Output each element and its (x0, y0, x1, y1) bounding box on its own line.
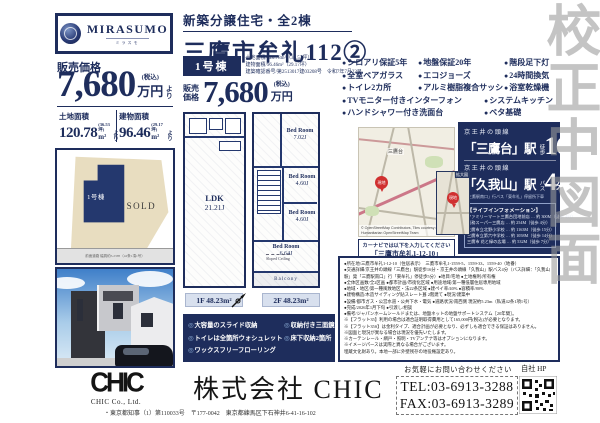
interior-feature-band: 大容量のスライド収納 トイレは全箇所ウォシュレット ワックスフリーフローリング … (183, 314, 335, 362)
site-pin-inset: 現地 (447, 192, 459, 204)
room-name: Bed Room (254, 244, 318, 251)
unit-price-currency: 万円 (271, 88, 293, 104)
price-row: 7,680 (税込) 万円 より (57, 67, 174, 102)
cloud-shape (55, 277, 85, 289)
unit-tag: 1号棟 (183, 56, 241, 76)
building-area-label: 建物面積 (119, 111, 173, 122)
brand-name: MIRASUMO (87, 22, 168, 37)
wall-line (282, 202, 317, 204)
site-pin-label: 現地 (449, 195, 457, 201)
property-category: 新築分譲住宅・全2棟 (183, 10, 352, 32)
contact-label: お気軽にお問い合わせください (398, 365, 518, 375)
interior-item: 大容量のスライド収納 (188, 320, 280, 329)
site-plan: 1号棟 SOLD 前面道路 幅員約5.23ｍ（42条1項1号） (55, 148, 175, 265)
room-name: Bed Room (280, 128, 320, 135)
site-pin: 現地 (375, 176, 388, 189)
price-amount: 7,680 (57, 67, 135, 102)
road-note: 前面道路 幅員約5.23ｍ（42条1項1号） (85, 254, 145, 258)
road-band: 前面道路 幅員約5.23ｍ（42条1項1号） (57, 248, 173, 263)
navi-instruction: カーナビでは以下を入力してください (359, 242, 454, 249)
divider (57, 106, 173, 107)
access-panel: 京王井の頭線 「三鷹台」駅 徒歩 16 分 京王井の頭線 「久我山」駅 バス 4… (458, 122, 560, 254)
car-shape (115, 345, 173, 367)
remark-line: ●設備/都市ガス・公営水道・公共下水・電気 ●道路状況/南西側 現況約5.23m… (344, 299, 554, 305)
life-info-item: 業務スーパー三鷹店 … 約 254M（徒歩 4分） (467, 220, 553, 226)
feature-item: 全室ペアガラス (342, 70, 418, 81)
floorplan-1f: LDK 21.21J (183, 112, 246, 288)
brand-kana: ミラスモ (106, 38, 150, 46)
bathroom-fixture (189, 118, 207, 134)
wall-line (185, 136, 244, 138)
room-name: Bed Room (282, 210, 320, 217)
entrance-fixture (225, 118, 241, 134)
feature-item: ベタ基礎 (484, 107, 521, 118)
land-area-value: 120.78 (59, 126, 97, 141)
kitchen-counter (219, 141, 241, 151)
life-info-title: 【ライフインフォメーション】 (467, 206, 553, 214)
price-suffix: より (164, 85, 174, 99)
wall-line (254, 166, 318, 168)
chic-logo-glyph: CHIC (76, 368, 156, 395)
bedroom2-label: Bed Room 4.60J (282, 174, 320, 188)
feature-item: トイレ2カ所 (342, 82, 418, 93)
access-mode: バス (538, 180, 544, 191)
station-name: 「三鷹台」駅 (464, 138, 536, 157)
feature-item: エコジョーズ (418, 70, 504, 81)
life-info-item: 三鷹市立北野小学校 … 約 1163M（徒歩 15分） (467, 227, 553, 233)
interior-item: 床下収納2箇所 (284, 333, 335, 342)
sloped-ceiling-note: Sloped Ceiling (266, 254, 290, 261)
land-area-tsubo: (36.53坪) (98, 122, 110, 133)
land-area: 土地面積 120.78 (36.53坪) m² より (57, 110, 116, 142)
room-size: 7.02J (280, 135, 320, 142)
area-row: 土地面積 120.78 (36.53坪) m² より 建物面積 96.46 (2… (57, 110, 175, 142)
wall-line (254, 240, 318, 242)
balcony-label: Balcony (274, 277, 298, 282)
bus-note: 「三鷹駅南口」行バス「東牟礼」停留所下車 (464, 194, 556, 200)
compass-icon (228, 289, 250, 311)
rail-line-name: 京王井の頭線 (464, 127, 556, 136)
remark-line: ※【フラット35】利用の場合は適合証明取得費用として165,000円(税込)が必… (344, 317, 554, 323)
unit1-lot-label: 1号棟 (87, 191, 105, 201)
interior-item: トイレは全箇所ウォシュレット (188, 333, 280, 342)
company-name: 株式会社 CHIC (193, 369, 384, 406)
qr-code (519, 376, 557, 414)
site-pin-label: 現地 (378, 180, 386, 186)
tel-fax-box: TEL:03-6913-3288 FAX:03-6913-3289 (396, 376, 518, 415)
license-line: ・東京都知事（1）第110033号 〒177-0042 東京都練馬区下石神井6-… (104, 408, 316, 417)
access-time: 16 (545, 137, 568, 157)
feature-item: TVモニター付きインターフォン (342, 95, 484, 106)
price-tax-note: (税込) (142, 71, 159, 81)
mirasumo-logo: MIRASUMO ミラスモ (55, 13, 173, 54)
unit-price-tax: (税込) (274, 79, 290, 88)
room-name: Bed Room (282, 174, 320, 181)
balcony: Balcony (254, 271, 318, 286)
interior-item: 収納付き三面鏡 (284, 320, 335, 329)
access-mode: 徒歩 (538, 144, 544, 155)
room-size: 4.60J (282, 181, 320, 188)
sold-label: SOLD (127, 201, 157, 211)
stairs (257, 170, 281, 214)
park-area (365, 206, 379, 216)
life-information: 【ライフインフォメーション】 ファミリーマート三鷹台団地前店 … 約 300M（… (464, 203, 556, 248)
chic-logo: CHIC CHIC Co., Ltd. (76, 369, 156, 406)
life-info-item: 三鷹市 花と緑の広場 … 約 532M（徒歩 7分） (467, 239, 553, 245)
exterior-render-image (55, 267, 175, 368)
building-area-tsubo: (29.17坪) (151, 122, 164, 133)
feature-item: 浴室乾燥機 (504, 82, 549, 93)
feature-item: アルミ樹脂複合サッシ (418, 82, 504, 93)
interior-item: ワックスフリーフローリング (188, 345, 280, 354)
enlarged-map-inset: 拡大図 現地 (436, 171, 470, 235)
land-area-label: 土地面積 (59, 111, 114, 122)
fax-number: FAX:03-6913-3289 (397, 396, 517, 413)
map-station-label: 三鷹台 (387, 148, 404, 155)
street (436, 212, 470, 214)
unit-price-amount: 7,680 (203, 77, 268, 106)
unit-price-label: 販売価格 (183, 84, 200, 102)
inset-title: 拡大図 (455, 172, 469, 178)
access-minute-unit: 分 (556, 180, 565, 192)
window-shape (113, 303, 123, 319)
homepage-label: 自社 HP (521, 364, 546, 374)
mirasumo-circle-icon (60, 23, 81, 44)
building-area: 建物面積 96.46 (29.17坪) m² より (116, 110, 175, 142)
property-remarks: ●所在地/三鷹市牟礼1-12-10（住居表示） 三鷹市牟礼1-1559-5、15… (338, 256, 560, 362)
room-size: 21.21J (185, 204, 244, 213)
feature-item: ハンドシャワー付き洗面台 (342, 107, 484, 118)
land-area-unit: m² (98, 133, 106, 141)
remark-line: ●交通詳細/京王井の頭線「三鷹台」駅徒歩16分・京王井の頭線「久我山」駅バス4分… (344, 267, 554, 280)
room-size: 4.60J (282, 217, 320, 224)
access-time: 4 (545, 173, 557, 193)
rail-line-name: 京王井の頭線 (464, 163, 556, 172)
bedroom3-label: Bed Room 4.60J (282, 210, 320, 224)
divider (464, 160, 556, 161)
ldk-label: LDK 21.21J (185, 194, 244, 212)
unit-price-row: 販売価格 7,680 (税込) 万円 (183, 77, 293, 106)
building-area-suffix: より (165, 130, 173, 141)
feature-item: 24時間換気 (504, 70, 549, 81)
remark-line: ※【フラット35S】は金利タイプ、適合計画が必要となり、必ずしも適合できる保証は… (344, 324, 554, 330)
bedroom1-label: Bed Room 7.02J (280, 128, 320, 142)
station-name: 「久我山」駅 (464, 174, 536, 193)
feature-item: シロアリ保証5年 (342, 57, 418, 68)
area-2f-label: 2F 48.23m² (262, 293, 320, 307)
feature-item: 階段足下灯 (504, 57, 549, 68)
floorplan-2f: Bed Room 7.02J Bed Room 4.60J Bed Room 4… (252, 112, 320, 288)
wc-fixture (209, 118, 223, 130)
chic-logo-subtext: CHIC Co., Ltd. (76, 398, 156, 406)
remark-line: 埋蔵文化財あり。本地一部に外壁残存の地役権設定あり。 (344, 349, 554, 355)
rail-line (358, 137, 455, 153)
park-area (425, 156, 443, 168)
access-minute-unit: 分 (568, 144, 577, 156)
feature-item: 地盤保証20年 (418, 57, 504, 68)
feature-list: シロアリ保証5年 地盤保証20年 階段足下灯 全室ペアガラス エコジョーズ 24… (342, 57, 560, 118)
tel-number: TEL:03-6913-3288 (397, 379, 517, 396)
feature-item: システムキッチン (484, 95, 553, 106)
window-shape (77, 299, 83, 321)
price-currency: 万円 (137, 81, 163, 100)
building-area-unit: m² (151, 133, 159, 141)
building-area-value: 96.46 (119, 126, 150, 141)
window-shape (141, 313, 153, 327)
